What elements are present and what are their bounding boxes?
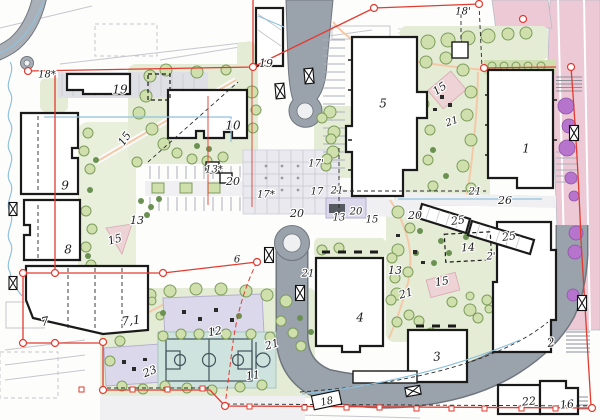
svg-text:17*: 17*	[257, 190, 275, 201]
plan-label-26-28: 26	[497, 194, 512, 207]
svg-text:14: 14	[461, 241, 476, 255]
svg-text:9: 9	[61, 179, 69, 193]
svg-text:13*: 13*	[205, 165, 223, 176]
plan-label-10-3: 10	[225, 119, 241, 133]
plan-label-15-23: 15	[366, 215, 379, 226]
pink-road-top-patch	[492, 0, 552, 30]
svg-text:16: 16	[559, 397, 574, 411]
svg-text:18': 18'	[455, 7, 470, 18]
svg-text:17': 17'	[308, 159, 323, 170]
svg-text:13: 13	[333, 213, 346, 224]
svg-text:21: 21	[468, 187, 482, 198]
plan-label-1-8: 1	[522, 142, 530, 156]
plan-label-21-25: 21	[301, 269, 315, 280]
svg-text:15: 15	[366, 215, 379, 226]
svg-text:2': 2'	[485, 252, 495, 263]
plan-label-71-37: 7,1	[121, 313, 141, 329]
plan-label-21-19: 21	[330, 186, 344, 197]
svg-text:25: 25	[449, 213, 466, 228]
plan-label-13-11: 13	[130, 214, 144, 227]
plan-label-11-40: 11	[245, 368, 261, 383]
svg-text:7,1: 7,1	[121, 313, 141, 329]
building-9	[21, 113, 78, 194]
svg-text:20: 20	[349, 207, 363, 218]
plan-label-25-29: 25	[449, 213, 466, 228]
plan-label-6-24: 6	[234, 255, 241, 266]
svg-text:17: 17	[311, 187, 324, 198]
svg-text:10: 10	[225, 119, 241, 133]
svg-text:21: 21	[301, 269, 315, 280]
plan-label-12-39: 12	[207, 324, 223, 339]
plan-label-14-31: 14	[461, 241, 476, 255]
plan-label-17-17: 17'	[308, 159, 323, 170]
plan-label-17-16: 17*	[257, 190, 275, 201]
site-plan-page: 18*191910518'152119813151513*2017*17'172…	[0, 0, 600, 420]
svg-text:26: 26	[497, 194, 512, 207]
svg-text:13: 13	[130, 214, 144, 227]
plan-label-9-9: 9	[61, 179, 69, 193]
plan-label-4-42: 4	[355, 311, 364, 325]
plan-label-20-15: 20	[225, 175, 240, 188]
svg-text:15: 15	[434, 274, 450, 289]
plan-label-21-27: 21	[468, 187, 482, 198]
svg-text:6: 6	[234, 255, 241, 266]
svg-text:25: 25	[500, 229, 517, 244]
plan-label-22-45: 22	[520, 394, 536, 408]
plan-label-20-26: 20	[407, 209, 422, 222]
plan-label-5-4: 5	[379, 97, 387, 111]
plan-label-15-34: 15	[434, 274, 450, 289]
plan-label-8-10: 8	[64, 243, 72, 257]
plan-label-19-2: 19	[259, 57, 273, 70]
plan-label-25-30: 25	[500, 229, 517, 244]
plan-label-17-18: 17	[311, 187, 324, 198]
building-4	[316, 258, 383, 352]
plan-label-18-5: 18'	[455, 7, 470, 18]
site-plan-canvas: 18*191910518'152119813151513*2017*17'172…	[0, 0, 600, 420]
plan-label-13-33: 13	[388, 264, 402, 277]
svg-text:13: 13	[388, 264, 402, 277]
svg-text:20: 20	[407, 209, 422, 222]
svg-text:8: 8	[64, 243, 72, 257]
kiosk-18	[452, 42, 468, 58]
svg-text:5: 5	[379, 97, 387, 111]
svg-text:21: 21	[330, 186, 344, 197]
svg-text:12: 12	[207, 324, 223, 339]
svg-text:19: 19	[259, 57, 273, 70]
plan-label-20-22: 20	[349, 207, 363, 218]
svg-text:20: 20	[289, 207, 304, 220]
plan-label-13-21: 13	[333, 213, 346, 224]
svg-text:19: 19	[112, 83, 128, 97]
plan-label-2-32: 2'	[485, 252, 495, 263]
svg-text:4: 4	[355, 311, 364, 325]
svg-text:1: 1	[522, 142, 530, 156]
svg-text:22: 22	[520, 394, 536, 408]
plan-label-18-0: 18*	[38, 70, 56, 81]
plan-label-16-46: 16	[559, 397, 574, 411]
svg-text:20: 20	[225, 175, 240, 188]
building-1	[488, 70, 553, 188]
svg-text:18*: 18*	[38, 70, 56, 81]
plan-label-13-14: 13*	[205, 165, 223, 176]
svg-text:11: 11	[245, 368, 261, 383]
plan-label-19-1: 19	[112, 83, 128, 97]
plan-label-20-20: 20	[289, 207, 304, 220]
